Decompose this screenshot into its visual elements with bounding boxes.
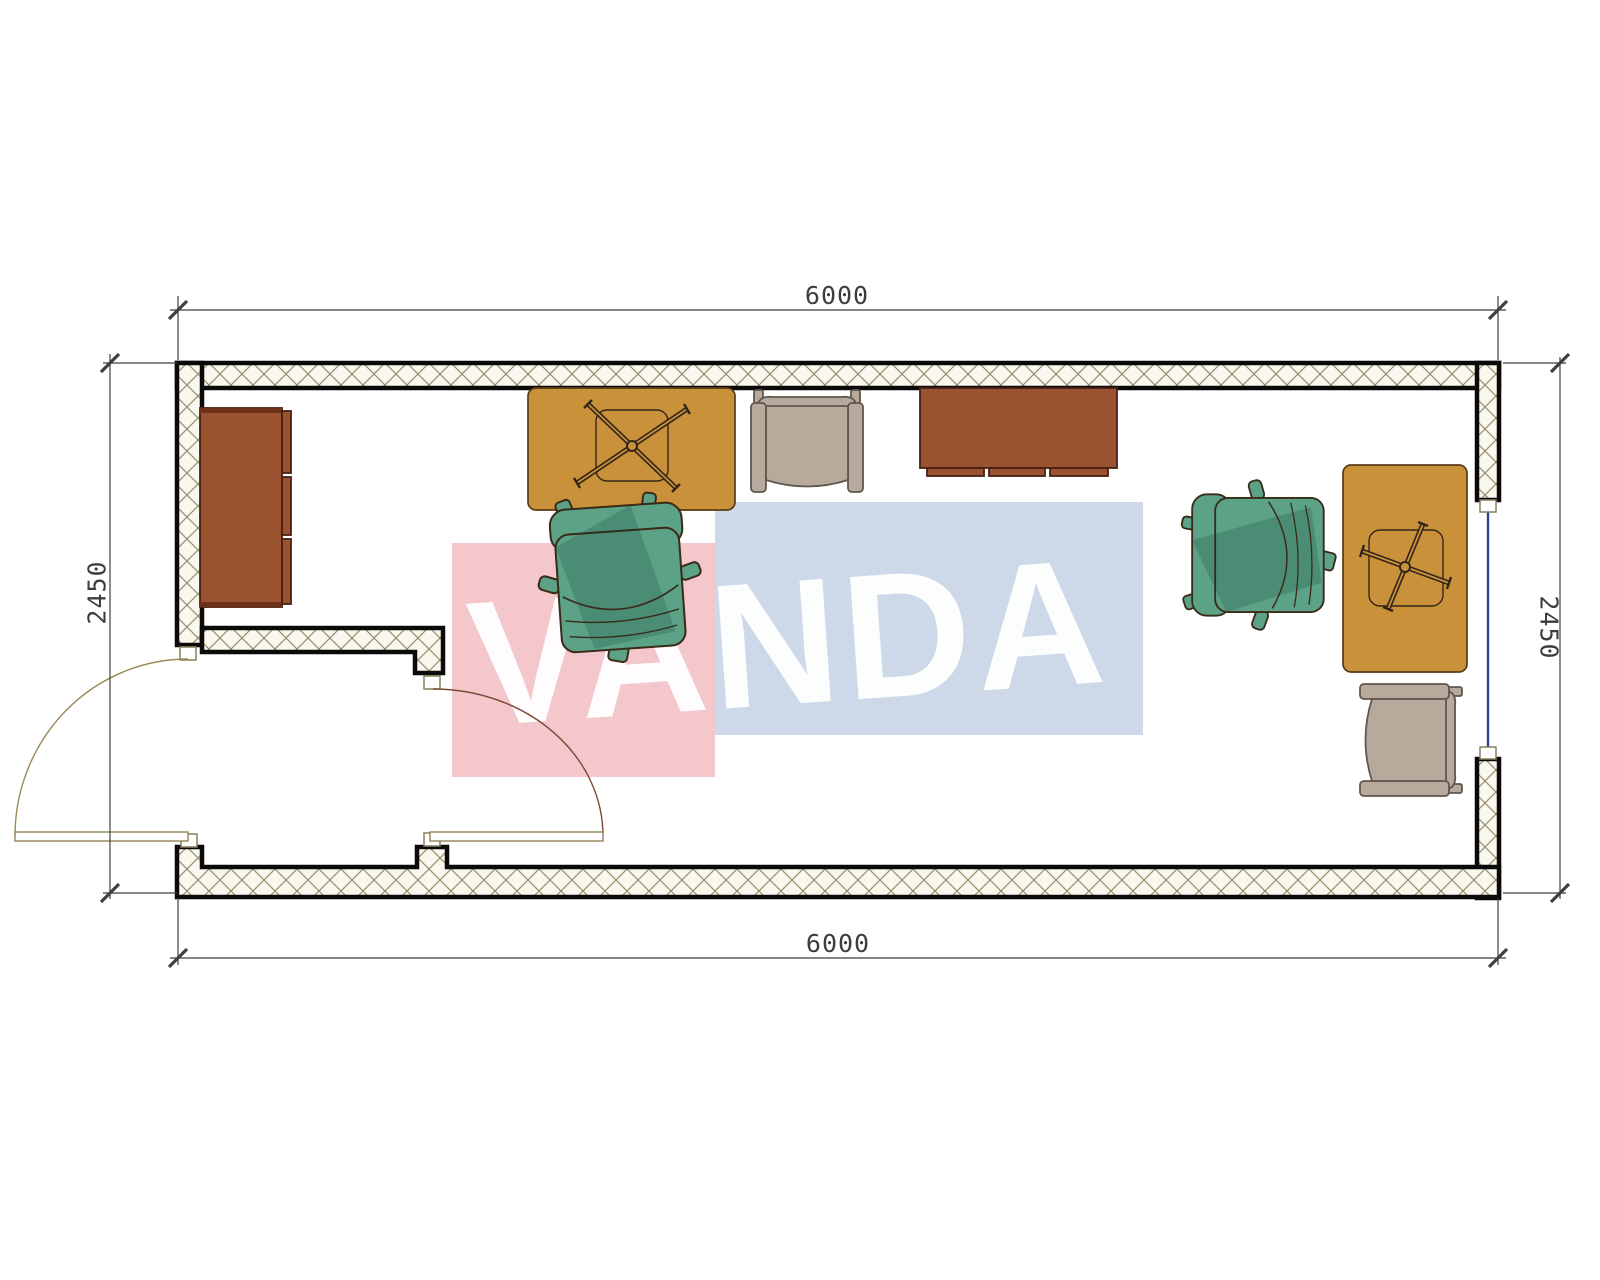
jamb-left-door-top <box>180 647 196 660</box>
wall-right-upper <box>1477 363 1499 500</box>
door-leaf-right <box>430 832 603 841</box>
floor-plan-page: VANDA <box>0 0 1600 1280</box>
desk-center <box>528 388 735 510</box>
jamb-window-top <box>1480 500 1496 512</box>
jamb-inner-door-top <box>424 676 440 689</box>
desk-right <box>1343 465 1467 672</box>
sideboard-left <box>200 408 291 607</box>
door-leaf-left <box>15 832 188 841</box>
wall-top <box>177 363 1499 388</box>
dimension-label-top: 6000 <box>787 283 887 308</box>
door-swing-arc-right <box>433 689 603 836</box>
entry-doors <box>15 659 603 841</box>
wall-bottom <box>177 847 1499 897</box>
armchair-bottom-right <box>1360 684 1462 796</box>
dimension-label-bottom: 6000 <box>788 931 888 956</box>
executive-chair-center <box>531 489 708 669</box>
tv-stand-top <box>920 388 1117 476</box>
jamb-window-bottom <box>1480 747 1496 759</box>
dimension-left <box>101 354 177 902</box>
wall-partition-vestibule <box>202 628 443 673</box>
door-swing-arc-left <box>15 659 188 836</box>
executive-chair-right <box>1181 479 1336 631</box>
armchair-top <box>751 390 863 492</box>
dimension-label-right: 2450 <box>1537 578 1562 678</box>
floor-plan-drawing <box>0 0 1600 1280</box>
dimension-label-left: 2450 <box>85 543 110 643</box>
wall-left-upper <box>177 363 202 645</box>
